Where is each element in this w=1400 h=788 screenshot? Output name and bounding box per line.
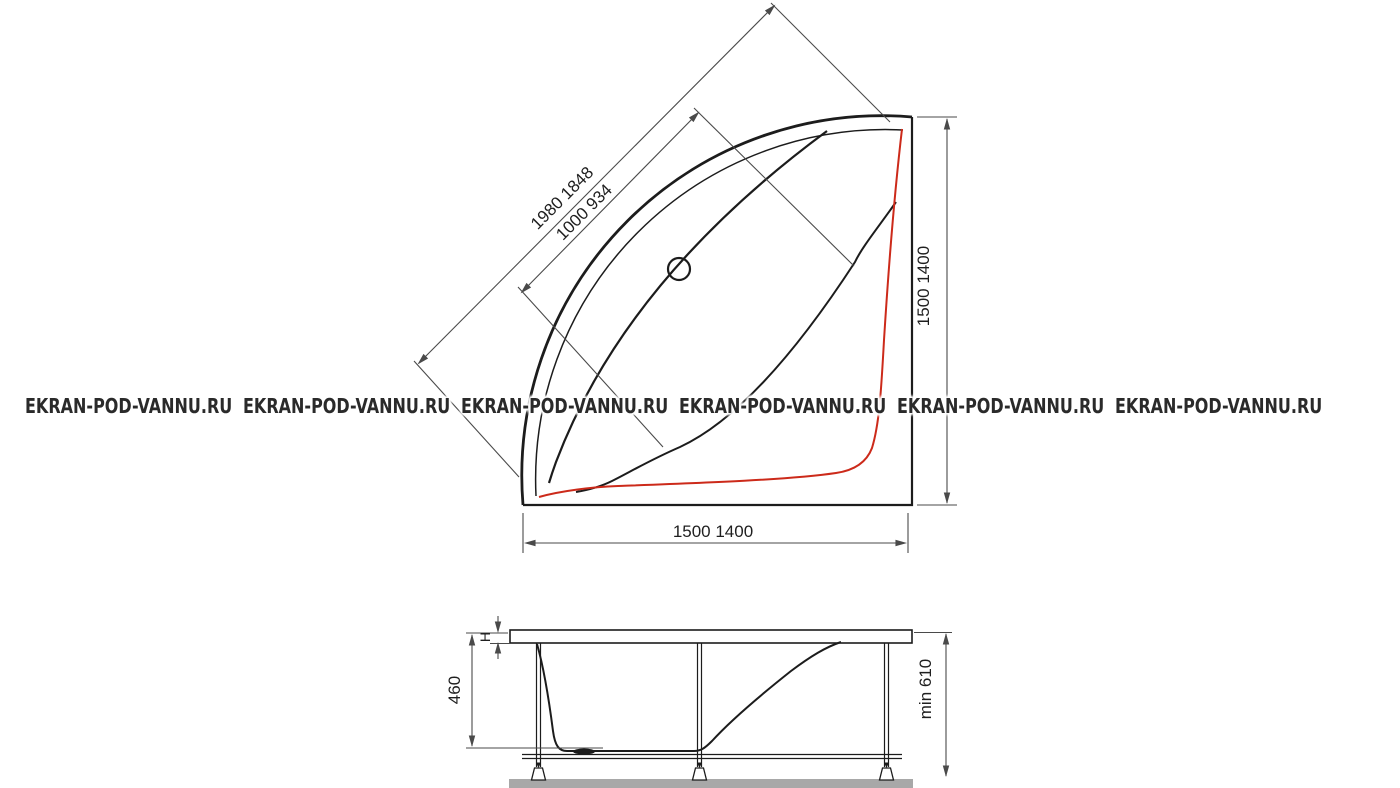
watermark: EKRAN-POD-VANNU.RU <box>1115 394 1322 418</box>
plan-rim-inner-arc <box>536 130 903 496</box>
side-drain <box>573 749 595 755</box>
side-dimensions <box>466 616 952 776</box>
watermark: EKRAN-POD-VANNU.RU <box>461 394 668 418</box>
extension-line <box>414 361 519 477</box>
plan-labels: 1980 1848 1000 934 1500 1400 1500 1400 <box>527 163 933 541</box>
arrowhead <box>896 541 905 546</box>
dimension-line-diagonal-outer <box>419 6 774 363</box>
arrowhead <box>944 635 949 644</box>
arrowhead <box>526 541 535 546</box>
frame-feet <box>532 763 894 781</box>
screen-highlight-line <box>539 129 902 497</box>
floor-strip <box>509 779 913 788</box>
arrowhead <box>470 736 475 745</box>
dim-label-H: H <box>477 632 493 642</box>
arrowhead <box>496 644 501 653</box>
side-rim <box>510 630 912 643</box>
arrowhead <box>945 493 950 502</box>
side-view <box>509 630 913 788</box>
side-labels: H 460 min 610 <box>445 632 935 719</box>
watermark: EKRAN-POD-VANNU.RU <box>243 394 450 418</box>
dim-label-460: 460 <box>445 676 464 704</box>
arrowhead <box>470 636 475 645</box>
dim-label-right: 1500 1400 <box>914 246 933 326</box>
plan-basin-nw-edge <box>549 131 827 483</box>
frame-rail <box>522 755 902 759</box>
watermark: EKRAN-POD-VANNU.RU <box>897 394 1104 418</box>
dim-label-bottom: 1500 1400 <box>673 522 753 541</box>
drain-circle <box>668 258 690 280</box>
arrowhead <box>945 120 950 129</box>
bathtub-technical-drawing: 1980 1848 1000 934 1500 1400 1500 1400 <box>0 0 1400 788</box>
side-tub-profile <box>537 642 841 751</box>
arrowhead <box>496 622 501 631</box>
plan-basin-se-edge <box>576 202 896 492</box>
watermark: EKRAN-POD-VANNU.RU <box>679 394 886 418</box>
dim-label-min610: min 610 <box>916 659 935 719</box>
arrowhead <box>944 766 949 775</box>
watermark: EKRAN-POD-VANNU.RU <box>25 394 232 418</box>
extension-line <box>771 3 890 122</box>
